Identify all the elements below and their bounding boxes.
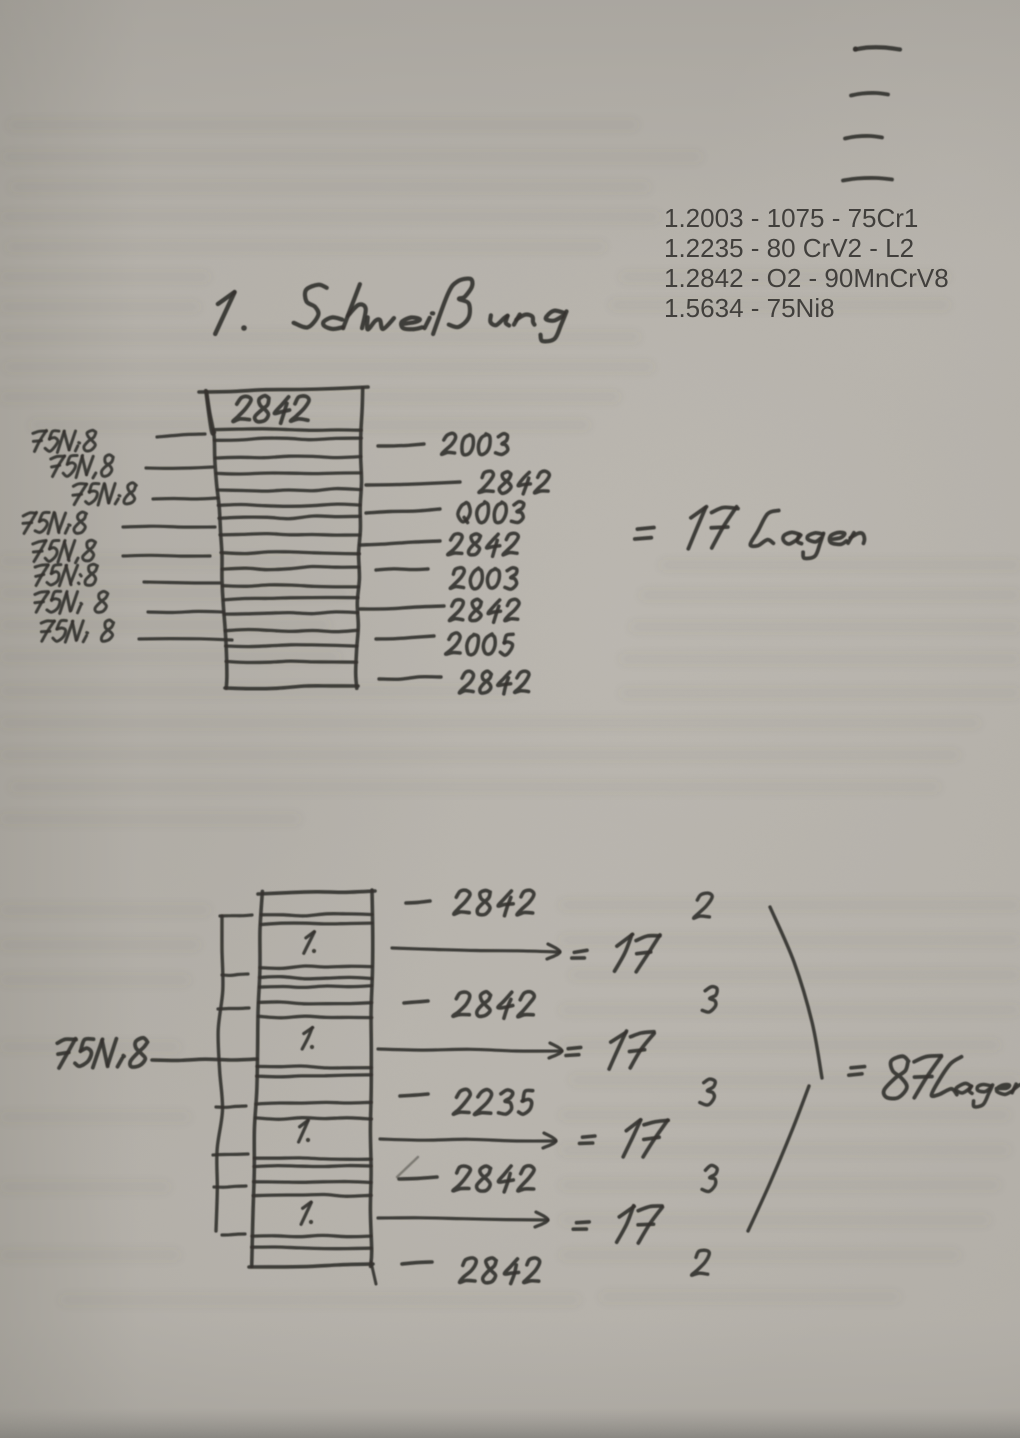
- svg-text:1.2842 - O2 - 90MnCrV8: 1.2842 - O2 - 90MnCrV8: [664, 263, 949, 293]
- svg-text:1.2003 - 1075 - 75Cr1: 1.2003 - 1075 - 75Cr1: [664, 203, 918, 233]
- svg-text:1.5634 - 75Ni8: 1.5634 - 75Ni8: [664, 293, 835, 323]
- svg-text:1.2235 - 80 CrV2 - L2: 1.2235 - 80 CrV2 - L2: [664, 233, 914, 263]
